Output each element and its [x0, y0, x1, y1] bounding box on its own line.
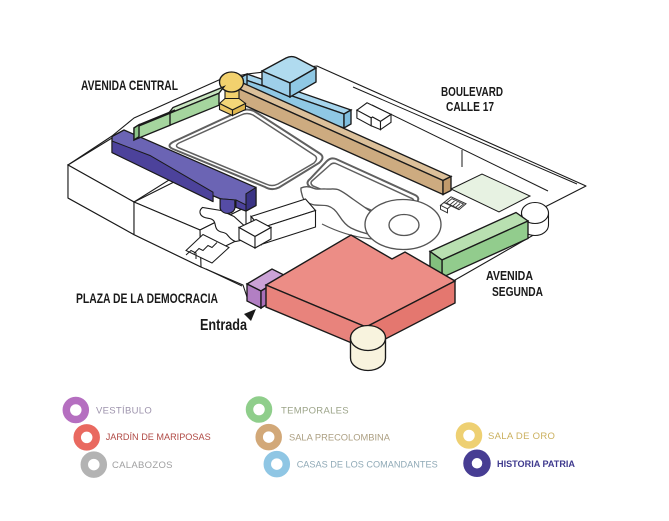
svg-text:Entrada: Entrada: [200, 317, 247, 334]
svg-text:SEGUNDA: SEGUNDA: [492, 284, 543, 299]
svg-text:PLAZA DE LA DEMOCRACIA: PLAZA DE LA DEMOCRACIA: [76, 290, 218, 306]
svg-text:BOULEVARD: BOULEVARD: [441, 84, 503, 99]
svg-text:HISTORIA PATRIA: HISTORIA PATRIA: [497, 459, 575, 470]
svg-text:AVENIDA CENTRAL: AVENIDA CENTRAL: [81, 77, 178, 93]
svg-text:CALABOZOS: CALABOZOS: [112, 460, 173, 471]
svg-text:AVENIDA: AVENIDA: [486, 268, 533, 283]
svg-text:SALA DE ORO: SALA DE ORO: [488, 431, 555, 442]
svg-text:CASAS DE LOS COMANDANTES: CASAS DE LOS COMANDANTES: [297, 460, 438, 471]
svg-text:VESTÍBULO: VESTÍBULO: [96, 406, 152, 417]
svg-text:TEMPORALES: TEMPORALES: [281, 406, 349, 417]
svg-text:CALLE 17: CALLE 17: [446, 99, 494, 114]
svg-text:SALA PRECOLOMBINA: SALA PRECOLOMBINA: [289, 433, 391, 444]
svg-text:JARDÍN DE MARIPOSAS: JARDÍN DE MARIPOSAS: [106, 432, 211, 443]
